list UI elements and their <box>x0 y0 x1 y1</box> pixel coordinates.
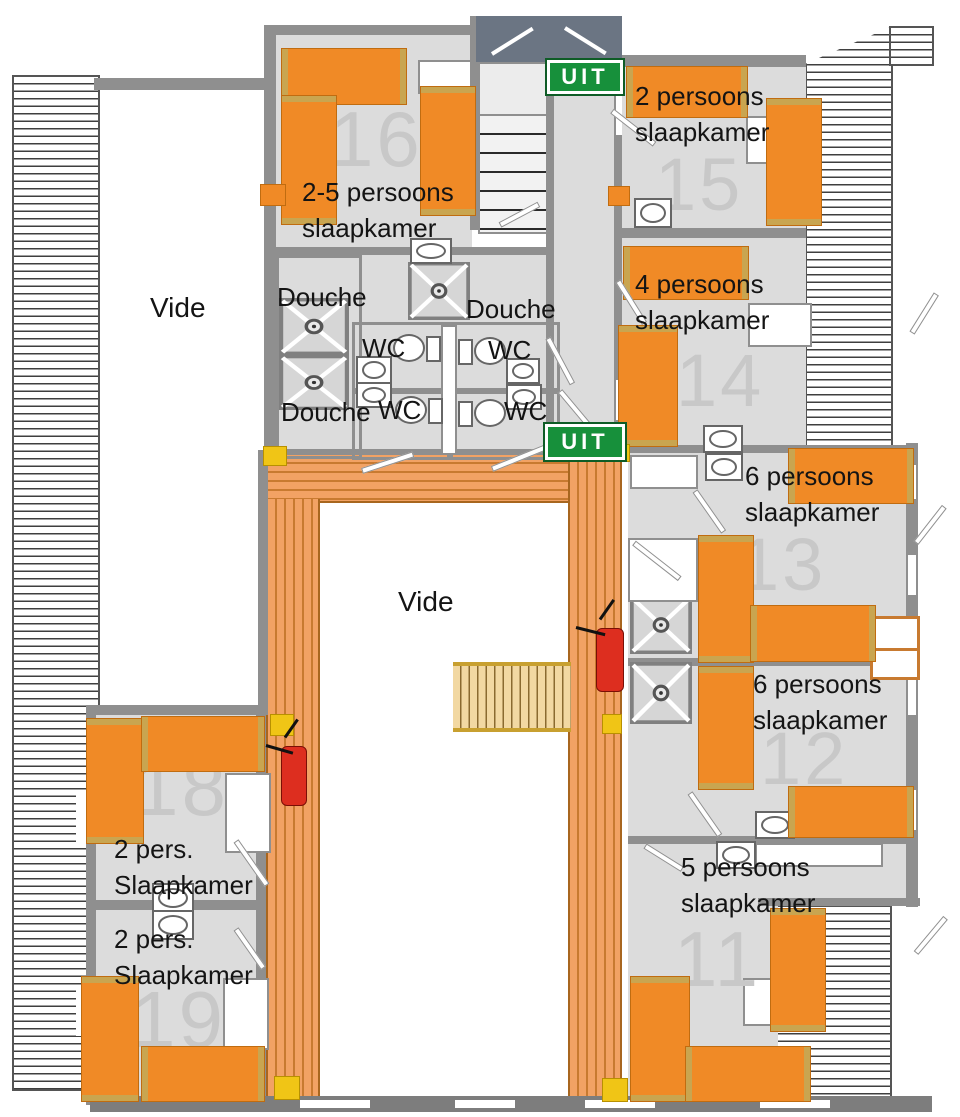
douche-label: Douche <box>281 394 371 430</box>
douche-label: Douche <box>466 291 556 327</box>
wc-label: WC <box>488 332 531 368</box>
bed-icon <box>141 716 265 772</box>
corridor-right-strip <box>568 449 622 1099</box>
closet <box>630 455 698 489</box>
open-window-icon <box>914 916 948 955</box>
wc-label: WC <box>378 392 421 428</box>
room-13-label: 6 persoons slaapkamer <box>745 458 879 530</box>
window-icon <box>908 675 916 715</box>
corridor-marker <box>274 1076 300 1100</box>
open-window-icon <box>914 505 947 545</box>
bed-icon <box>630 976 690 1102</box>
corridor-marker <box>602 1078 628 1102</box>
wall-marker <box>608 186 630 206</box>
douche-label: Douche <box>277 279 367 315</box>
window-icon <box>908 555 916 595</box>
duct-shaft <box>441 325 457 455</box>
room-19-label: 2 pers. Slaapkamer <box>114 921 253 993</box>
bed-icon <box>86 718 144 844</box>
room-14-number: 14 <box>676 344 764 418</box>
bed-icon <box>698 535 754 663</box>
room-16-number: 16 <box>330 100 423 178</box>
corridor-top-band <box>266 453 620 503</box>
room-15-label-line2: slaapkamer <box>635 114 769 150</box>
wc-label: WC <box>362 330 405 366</box>
bed-icon <box>750 605 876 662</box>
floor-plan: UIT UIT 16 15 14 13 12 11 18 19 Vide Vid… <box>0 0 960 1117</box>
room-13-label-line2: slaapkamer <box>745 494 879 530</box>
room-19-label-line1: 2 pers. <box>114 921 253 957</box>
room-14-label: 4 persoons slaapkamer <box>635 266 769 338</box>
roof-hatch-right-top <box>805 26 893 459</box>
wall <box>264 25 478 35</box>
sink-icon <box>703 425 743 453</box>
stair-landing <box>478 62 548 118</box>
shower-stall-icon <box>408 262 470 320</box>
room-14-label-line2: slaapkamer <box>635 302 769 338</box>
bed-icon <box>770 908 826 1032</box>
wc-label: WC <box>504 393 547 429</box>
bed-icon <box>685 1046 811 1102</box>
room-11-label-line1: 5 persoons <box>681 849 815 885</box>
bed-icon <box>766 98 822 226</box>
roof-hatch-right-corner <box>889 26 934 66</box>
sink-icon <box>705 453 743 481</box>
exit-sign: UIT <box>545 424 625 460</box>
room-12-label: 6 persoons slaapkamer <box>753 666 887 738</box>
wall <box>264 25 276 455</box>
central-stairs <box>453 662 571 732</box>
room-11-label-line2: slaapkamer <box>681 885 815 921</box>
wall <box>620 228 806 238</box>
bed-icon <box>81 976 139 1102</box>
room-15-label-line1: 2 persoons <box>635 78 769 114</box>
entry-vestibule <box>476 16 622 62</box>
room-18-label-line1: 2 pers. <box>114 831 253 867</box>
room-16-label-line2: slaapkamer <box>302 210 454 246</box>
room-12-label-line1: 6 persoons <box>753 666 887 702</box>
wall <box>258 450 268 708</box>
room-16-label: 2-5 persoons slaapkamer <box>302 174 454 246</box>
room-12-label-line2: slaapkamer <box>753 702 887 738</box>
window-icon <box>455 1100 515 1108</box>
shower-stall-icon <box>630 596 692 654</box>
toilet-icon <box>458 399 506 427</box>
vide-label: Vide <box>398 584 454 620</box>
fire-extinguisher-icon <box>281 746 307 806</box>
vide-label: Vide <box>150 290 206 326</box>
bed-icon <box>618 325 678 447</box>
room-14-label-line1: 4 persoons <box>635 266 769 302</box>
wall-marker <box>260 184 286 206</box>
bed-icon <box>141 1046 265 1102</box>
room-11-label: 5 persoons slaapkamer <box>681 849 815 921</box>
room-18-label-line2: Slaapkamer <box>114 867 253 903</box>
corridor-marker <box>263 446 287 466</box>
bed-icon <box>698 666 754 790</box>
fire-extinguisher-icon <box>596 628 624 692</box>
open-window-icon <box>909 292 938 334</box>
room-18-label: 2 pers. Slaapkamer <box>114 831 253 903</box>
sink-icon <box>634 198 672 228</box>
wall <box>86 705 268 715</box>
room-13-label-line1: 6 persoons <box>745 458 879 494</box>
exit-sign: UIT <box>547 60 623 94</box>
shower-stall-icon <box>630 662 692 724</box>
window-icon <box>300 1100 370 1108</box>
corridor-marker <box>602 714 622 734</box>
room-16-label-line1: 2-5 persoons <box>302 174 454 210</box>
room-15-label: 2 persoons slaapkamer <box>635 78 769 150</box>
room-19-label-line2: Slaapkamer <box>114 957 253 993</box>
wall <box>94 78 276 90</box>
bed-icon <box>788 786 914 838</box>
